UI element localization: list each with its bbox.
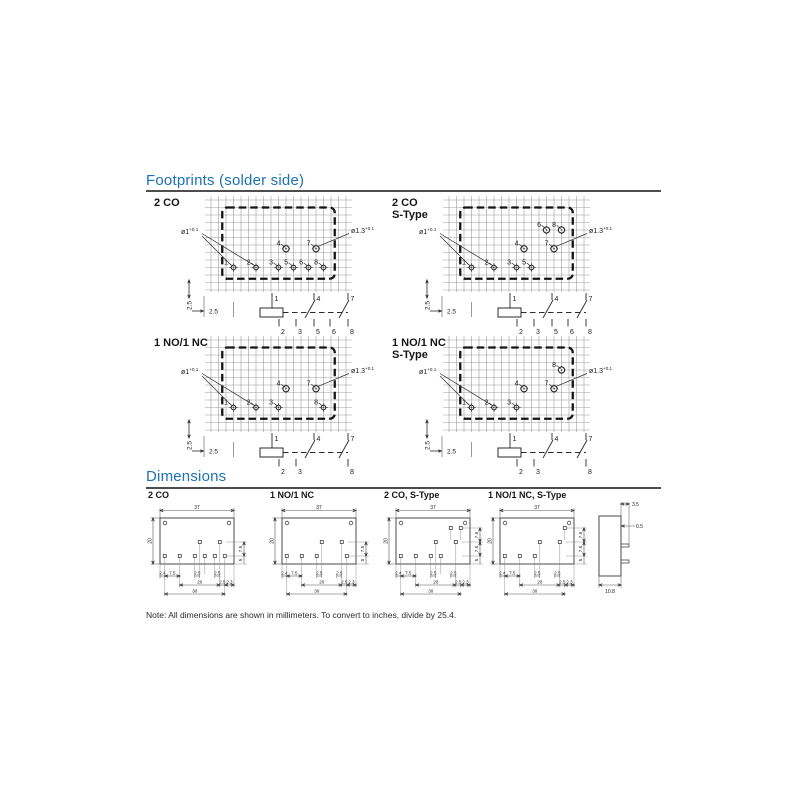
footprint-diagram: 123847ø1+0.1ø1.3+0.12.52.5147238 [146,336,404,482]
svg-text:3: 3 [507,259,511,266]
svg-text:7.5: 7.5 [474,545,480,552]
svg-text:1: 1 [275,296,279,303]
svg-text:2.5: 2.5 [447,309,456,316]
svg-text:8: 8 [588,329,592,336]
svg-text:8: 8 [314,259,318,266]
footprints-section-title: Footprints (solder side) [146,172,304,189]
svg-text:7.5: 7.5 [509,570,516,575]
svg-text:6: 6 [332,329,336,336]
svg-text:7: 7 [589,296,593,303]
dimension-variant-label: 2 CO, S-Type [384,490,439,500]
svg-text:20: 20 [383,538,389,544]
svg-text:20: 20 [537,579,543,584]
svg-text:3: 3 [269,259,273,266]
svg-text:2: 2 [281,329,285,336]
svg-text:7: 7 [351,296,355,303]
svg-text:10.8: 10.8 [605,589,615,595]
svg-text:8: 8 [350,329,354,336]
svg-text:5: 5 [578,558,584,561]
svg-text:2: 2 [281,469,285,476]
footprint-diagram: 12356847ø1+0.1ø1.3+0.12.52.514723568 [146,196,404,342]
footprint-variant-label: 2 CO [154,197,180,209]
svg-text:2.3: 2.3 [226,579,233,584]
svg-text:3: 3 [298,469,302,476]
svg-text:4: 4 [317,436,321,443]
svg-text:7: 7 [545,241,549,248]
svg-text:5: 5 [360,558,366,561]
dimension-drawing: 37207.552.47.52.52.5202.52.330 [146,502,276,608]
svg-text:2.5: 2.5 [187,441,194,450]
svg-text:2.5: 2.5 [430,570,437,575]
svg-text:ø1.3+0.1: ø1.3+0.1 [589,226,613,235]
dimension-cell-1-no-1-nc: 1 NO/1 NC37207.552.47.52.52.5202.52.330 [268,490,398,608]
svg-text:30: 30 [314,588,320,593]
svg-text:37: 37 [194,505,200,511]
svg-text:4: 4 [277,241,281,248]
svg-text:5: 5 [554,329,558,336]
svg-text:2.3: 2.3 [462,579,469,584]
svg-text:ø1.3+0.1: ø1.3+0.1 [351,366,375,375]
svg-text:6: 6 [299,259,303,266]
svg-text:ø1+0.1: ø1+0.1 [181,367,199,376]
dimension-drawing: 37207.552.47.52.52.5202.52.330 [268,502,398,608]
svg-text:5: 5 [284,259,288,266]
svg-text:20: 20 [319,579,325,584]
svg-text:30: 30 [428,588,434,593]
svg-text:2.5: 2.5 [450,570,457,575]
svg-text:0.5: 0.5 [636,524,643,530]
svg-text:2.5: 2.5 [209,449,218,456]
svg-text:ø1.3+0.1: ø1.3+0.1 [351,226,375,235]
svg-text:1: 1 [513,296,517,303]
svg-text:7.5: 7.5 [578,545,584,552]
svg-text:4: 4 [555,296,559,303]
svg-text:7.5: 7.5 [578,531,584,538]
svg-text:4: 4 [515,241,519,248]
svg-text:ø1+0.1: ø1+0.1 [419,367,437,376]
svg-text:7: 7 [545,381,549,388]
svg-text:4: 4 [555,436,559,443]
svg-text:3: 3 [536,329,540,336]
svg-text:2.5: 2.5 [554,570,561,575]
svg-text:5: 5 [474,558,480,561]
svg-text:4: 4 [515,381,519,388]
svg-text:7.5: 7.5 [474,531,480,538]
svg-text:2.3: 2.3 [566,579,573,584]
svg-text:7.5: 7.5 [291,570,298,575]
svg-text:8: 8 [588,469,592,476]
svg-text:20: 20 [197,579,203,584]
svg-text:6: 6 [570,329,574,336]
svg-text:20: 20 [487,538,493,544]
svg-text:7.5: 7.5 [405,570,412,575]
svg-text:2.5: 2.5 [447,449,456,456]
svg-text:2: 2 [519,469,523,476]
footprint-cell-1-no-1-nc: 1 NO/1 NC123847ø1+0.1ø1.3+0.12.52.514723… [146,336,404,482]
footprint-variant-label: 2 CO S-Type [392,197,428,221]
footprint-variant-label: 1 NO/1 NC S-Type [392,337,446,361]
dimension-variant-label: 1 NO/1 NC [270,490,314,500]
svg-text:2.5: 2.5 [316,570,323,575]
svg-text:4: 4 [317,296,321,303]
svg-text:2.5: 2.5 [209,309,218,316]
svg-text:8: 8 [314,399,318,406]
svg-text:37: 37 [430,505,436,511]
svg-text:ø1+0.1: ø1+0.1 [181,227,199,236]
svg-text:2.3: 2.3 [348,579,355,584]
svg-text:2.5: 2.5 [194,570,201,575]
svg-text:ø1.3+0.1: ø1.3+0.1 [589,366,613,375]
svg-text:5: 5 [522,259,526,266]
svg-text:2.5: 2.5 [187,301,194,310]
svg-text:2.5: 2.5 [214,570,221,575]
svg-text:1: 1 [275,436,279,443]
svg-text:7: 7 [589,436,593,443]
dimension-variant-label: 2 CO [148,490,169,500]
svg-text:3: 3 [507,399,511,406]
section-rule [146,487,661,489]
dimension-variant-label: 1 NO/1 NC, S-Type [488,490,566,500]
svg-text:4: 4 [277,381,281,388]
svg-text:37: 37 [316,505,322,511]
svg-text:20: 20 [269,538,275,544]
svg-text:7: 7 [307,241,311,248]
svg-text:7: 7 [351,436,355,443]
side-view-drawing: 3.50.510.8 [593,492,665,604]
svg-text:2.5: 2.5 [336,570,343,575]
svg-text:7.5: 7.5 [360,545,366,552]
svg-text:8: 8 [552,222,556,229]
svg-text:3: 3 [269,399,273,406]
datasheet-page: Footprints (solder side) 2 CO12356847ø1+… [0,0,800,800]
footprint-cell-1-no-1-nc-s-type: 1 NO/1 NC S-Type123478ø1+0.1ø1.3+0.12.52… [384,336,642,482]
svg-text:3.5: 3.5 [632,502,639,508]
dimensions-section-title: Dimensions [146,468,226,485]
footprint-cell-2-co-s-type: 2 CO S-Type12354768ø1+0.1ø1.3+0.12.52.51… [384,196,642,342]
svg-text:5: 5 [316,329,320,336]
svg-text:ø1+0.1: ø1+0.1 [419,227,437,236]
svg-text:8: 8 [552,362,556,369]
svg-text:8: 8 [350,469,354,476]
footprint-variant-label: 1 NO/1 NC [154,337,208,349]
side-view-cell: 3.50.510.8 [593,490,665,608]
section-rule [146,190,661,192]
svg-text:6: 6 [537,222,541,229]
svg-text:30: 30 [192,588,198,593]
dimensions-note: Note: All dimensions are shown in millim… [146,610,456,620]
svg-text:2: 2 [519,329,523,336]
svg-text:3: 3 [298,329,302,336]
svg-text:7.5: 7.5 [169,570,176,575]
svg-text:30: 30 [532,588,538,593]
dimension-cell-2-co: 2 CO37207.552.47.52.52.5202.52.330 [146,490,276,608]
svg-text:7.5: 7.5 [238,545,244,552]
svg-text:1: 1 [513,436,517,443]
svg-text:2.5: 2.5 [425,441,432,450]
svg-text:5: 5 [238,558,244,561]
footprint-cell-2-co: 2 CO12356847ø1+0.1ø1.3+0.12.52.514723568 [146,196,404,342]
svg-text:2.5: 2.5 [425,301,432,310]
svg-text:37: 37 [534,505,540,511]
svg-text:20: 20 [433,579,439,584]
svg-text:2.5: 2.5 [534,570,541,575]
svg-text:20: 20 [147,538,153,544]
svg-text:3: 3 [536,469,540,476]
svg-text:7: 7 [307,381,311,388]
